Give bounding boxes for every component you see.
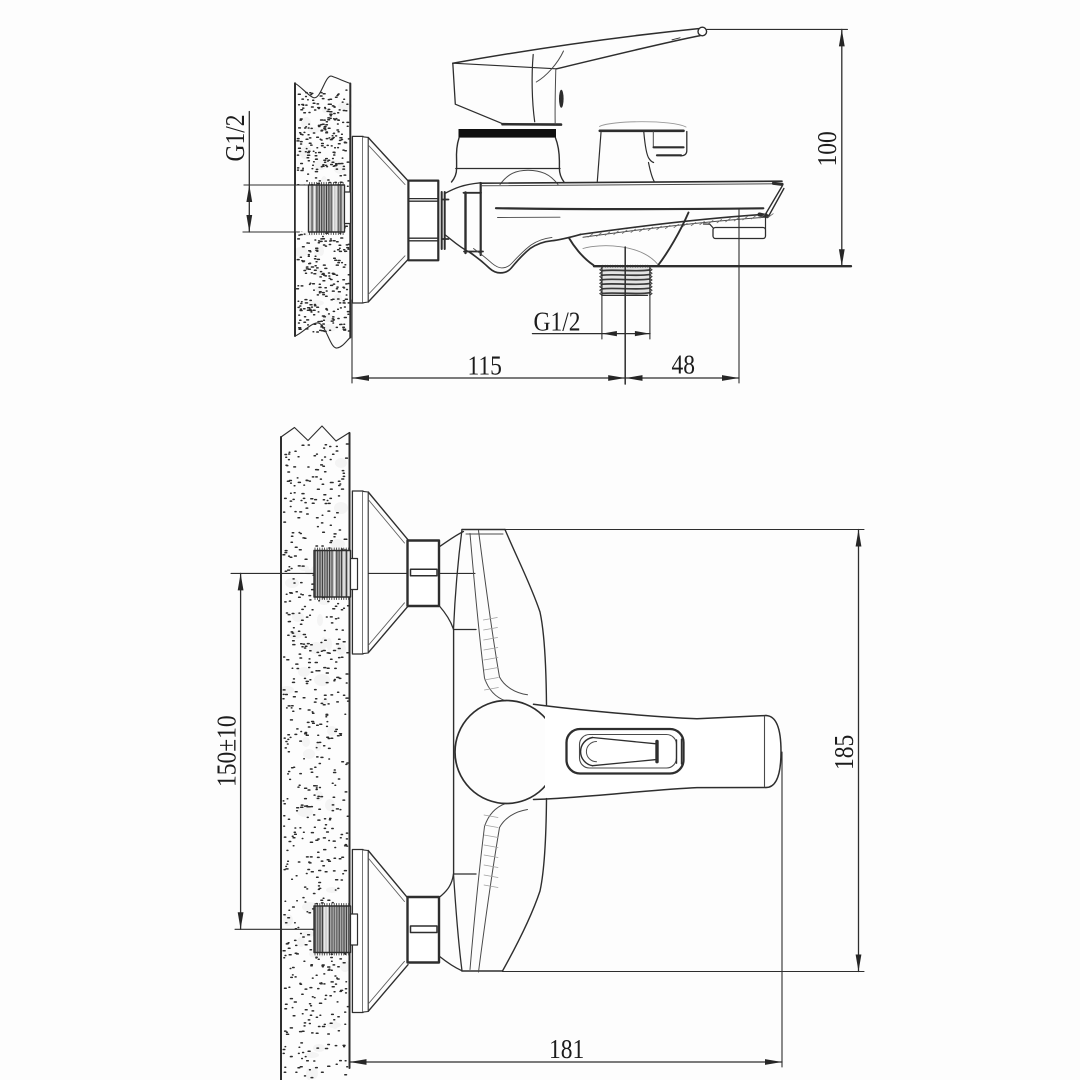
svg-text:150±10: 150±10	[212, 715, 242, 787]
svg-text:100: 100	[813, 131, 843, 166]
svg-text:181: 181	[549, 1035, 584, 1065]
svg-text:185: 185	[830, 735, 860, 770]
svg-text:G1/2: G1/2	[534, 307, 581, 337]
svg-text:115: 115	[468, 351, 502, 381]
svg-text:48: 48	[672, 350, 695, 380]
svg-text:G1/2: G1/2	[221, 115, 251, 162]
